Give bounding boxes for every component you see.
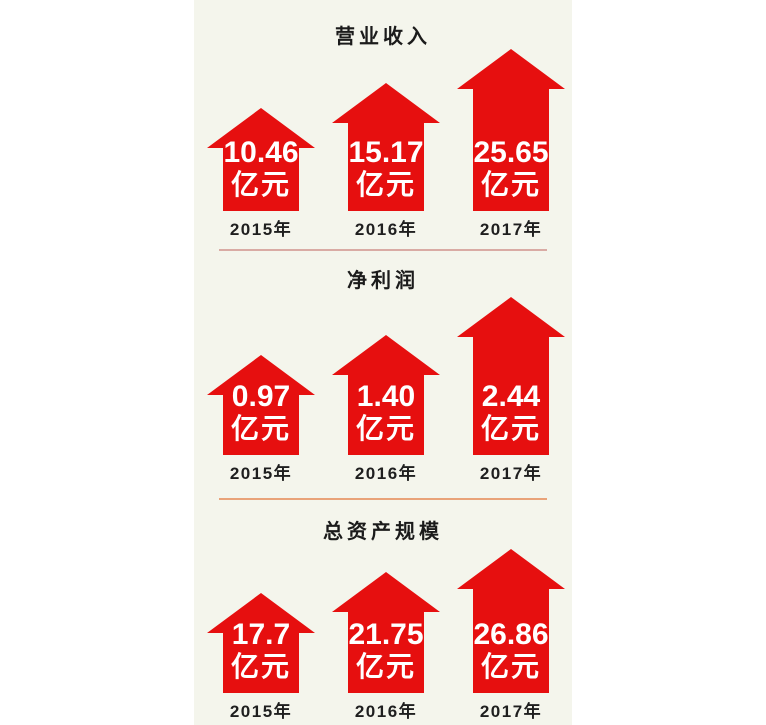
- unit-label: 亿元: [332, 169, 440, 200]
- arrows-row: 17.7 亿元 2015年 21.75 亿元 2016年: [194, 549, 572, 725]
- arrow-group-2015: 17.7 亿元 2015年: [202, 593, 320, 717]
- unit-label: 亿元: [457, 413, 565, 444]
- arrow-group-2017: 25.65 亿元 2017年: [452, 49, 570, 235]
- section-title: 净利润: [194, 269, 572, 293]
- section-divider: [219, 249, 547, 251]
- section-net-profit: 净利润 0.97 亿元 2015年 1.40 亿元: [194, 250, 572, 499]
- value-label: 0.97: [207, 381, 315, 413]
- infographic-canvas: 营业收入 10.46 亿元 2015年 15.17 亿元: [0, 0, 766, 725]
- year-label: 2016年: [355, 697, 417, 717]
- unit-label: 亿元: [457, 169, 565, 200]
- arrow-group-2016: 15.17 亿元 2016年: [327, 83, 445, 235]
- arrow-group-2016: 1.40 亿元 2016年: [327, 335, 445, 479]
- unit-label: 亿元: [332, 413, 440, 444]
- year-label: 2016年: [355, 459, 417, 479]
- arrow-group-2016: 21.75 亿元 2016年: [327, 572, 445, 717]
- arrow-text: 15.17 亿元: [332, 137, 440, 200]
- growth-up-arrow-icon: 2.44 亿元: [457, 297, 565, 455]
- section-operating-revenue: 营业收入 10.46 亿元 2015年 15.17 亿元: [194, 0, 572, 250]
- growth-up-arrow-icon: 26.86 亿元: [457, 549, 565, 693]
- unit-label: 亿元: [207, 651, 315, 682]
- section-title: 总资产规模: [194, 520, 572, 544]
- arrow-group-2017: 2.44 亿元 2017年: [452, 297, 570, 479]
- year-label: 2015年: [230, 697, 292, 717]
- unit-label: 亿元: [207, 413, 315, 444]
- growth-up-arrow-icon: 25.65 亿元: [457, 49, 565, 211]
- growth-up-arrow-icon: 1.40 亿元: [332, 335, 440, 455]
- arrow-text: 17.7 亿元: [207, 619, 315, 682]
- value-label: 17.7: [207, 619, 315, 651]
- arrow-group-2015: 10.46 亿元 2015年: [202, 108, 320, 235]
- year-label: 2017年: [480, 459, 542, 479]
- chart-panel: 营业收入 10.46 亿元 2015年 15.17 亿元: [194, 0, 572, 725]
- value-label: 21.75: [332, 619, 440, 651]
- arrow-text: 2.44 亿元: [457, 381, 565, 444]
- value-label: 25.65: [457, 137, 565, 169]
- growth-up-arrow-icon: 15.17 亿元: [332, 83, 440, 211]
- growth-up-arrow-icon: 0.97 亿元: [207, 355, 315, 455]
- year-label: 2015年: [230, 459, 292, 479]
- value-label: 26.86: [457, 619, 565, 651]
- growth-up-arrow-icon: 10.46 亿元: [207, 108, 315, 211]
- growth-up-arrow-icon: 17.7 亿元: [207, 593, 315, 693]
- value-label: 2.44: [457, 381, 565, 413]
- arrow-group-2017: 26.86 亿元 2017年: [452, 549, 570, 717]
- year-label: 2015年: [230, 215, 292, 235]
- section-divider: [219, 498, 547, 500]
- year-label: 2017年: [480, 697, 542, 717]
- arrows-row: 0.97 亿元 2015年 1.40 亿元 2016年: [194, 297, 572, 499]
- unit-label: 亿元: [457, 651, 565, 682]
- arrow-text: 10.46 亿元: [207, 137, 315, 200]
- value-label: 15.17: [332, 137, 440, 169]
- value-label: 10.46: [207, 137, 315, 169]
- growth-up-arrow-icon: 21.75 亿元: [332, 572, 440, 693]
- section-total-assets: 总资产规模 17.7 亿元 2015年 21.75 亿元: [194, 499, 572, 725]
- arrow-text: 1.40 亿元: [332, 381, 440, 444]
- arrows-row: 10.46 亿元 2015年 15.17 亿元 2016年: [194, 49, 572, 251]
- section-title: 营业收入: [194, 25, 572, 49]
- arrow-text: 25.65 亿元: [457, 137, 565, 200]
- unit-label: 亿元: [207, 169, 315, 200]
- arrow-group-2015: 0.97 亿元 2015年: [202, 355, 320, 479]
- unit-label: 亿元: [332, 651, 440, 682]
- arrow-text: 0.97 亿元: [207, 381, 315, 444]
- arrow-text: 21.75 亿元: [332, 619, 440, 682]
- year-label: 2017年: [480, 215, 542, 235]
- year-label: 2016年: [355, 215, 417, 235]
- value-label: 1.40: [332, 381, 440, 413]
- arrow-text: 26.86 亿元: [457, 619, 565, 682]
